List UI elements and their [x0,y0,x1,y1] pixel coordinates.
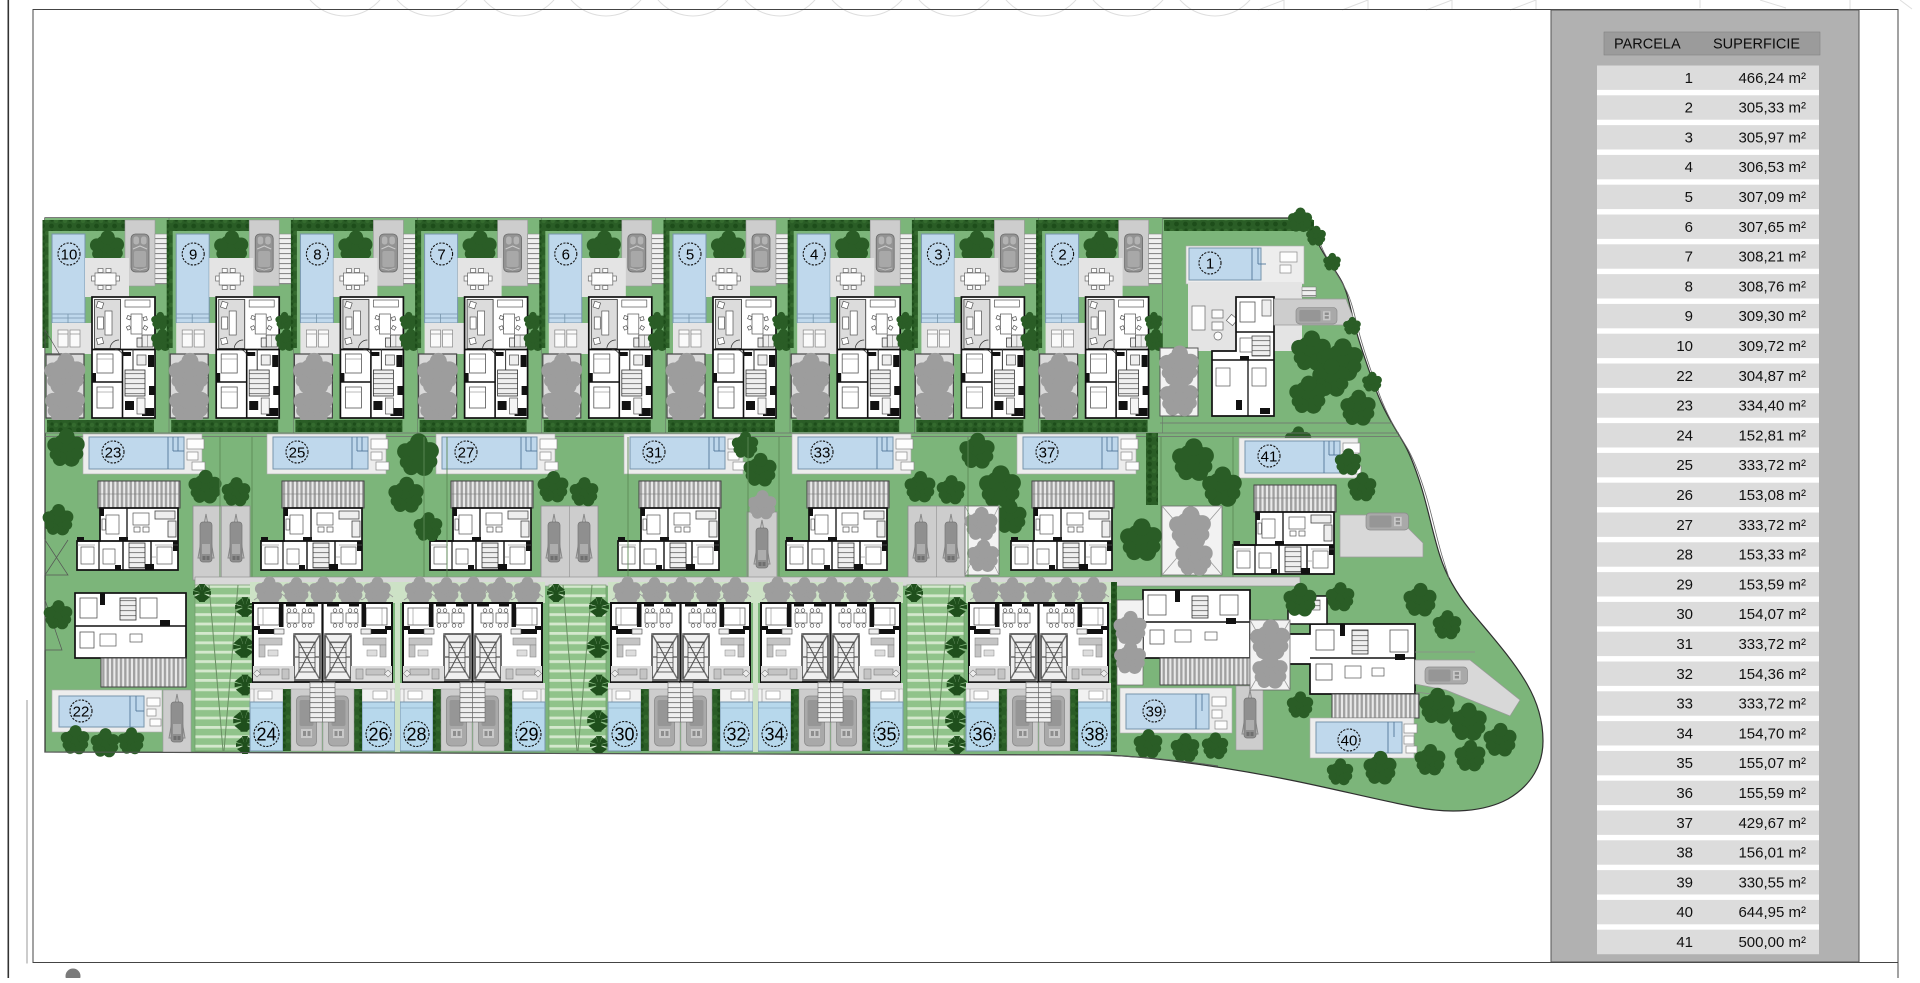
svg-text:153,59 m²: 153,59 m² [1738,576,1806,593]
svg-text:25: 25 [1676,457,1693,474]
svg-text:26: 26 [368,724,388,744]
svg-text:SUPERFICIE: SUPERFICIE [1713,37,1800,53]
svg-text:24: 24 [256,724,276,744]
svg-text:36: 36 [1676,785,1693,802]
svg-text:8: 8 [313,246,321,263]
svg-text:39: 39 [1146,703,1163,720]
svg-text:305,33 m²: 305,33 m² [1738,100,1806,117]
svg-text:155,59 m²: 155,59 m² [1738,785,1806,802]
svg-text:3: 3 [1685,129,1693,146]
svg-text:22: 22 [73,703,90,720]
svg-text:28: 28 [406,724,426,744]
svg-text:36: 36 [972,724,992,744]
svg-text:10: 10 [1676,338,1693,355]
svg-text:304,87 m²: 304,87 m² [1738,368,1806,385]
svg-text:4: 4 [810,246,818,263]
svg-text:2: 2 [1685,100,1693,117]
svg-text:334,40 m²: 334,40 m² [1738,398,1806,415]
svg-text:38: 38 [1084,724,1104,744]
svg-text:644,95 m²: 644,95 m² [1738,904,1806,921]
svg-text:333,72 m²: 333,72 m² [1738,517,1806,534]
svg-text:333,72 m²: 333,72 m² [1738,636,1806,653]
svg-text:154,36 m²: 154,36 m² [1738,666,1806,683]
svg-text:309,72 m²: 309,72 m² [1738,338,1806,355]
svg-text:7: 7 [437,246,445,263]
svg-text:500,00 m²: 500,00 m² [1738,934,1806,951]
svg-text:27: 27 [1676,517,1693,534]
svg-text:7: 7 [1685,249,1693,266]
svg-text:466,24 m²: 466,24 m² [1738,70,1806,87]
svg-text:40: 40 [1341,732,1358,749]
svg-text:PARCELA: PARCELA [1614,37,1681,53]
svg-text:155,07 m²: 155,07 m² [1738,755,1806,772]
svg-text:5: 5 [686,246,694,263]
svg-text:29: 29 [518,724,538,744]
svg-text:153,33 m²: 153,33 m² [1738,547,1806,564]
svg-text:154,07 m²: 154,07 m² [1738,606,1806,623]
svg-text:9: 9 [1685,308,1693,325]
svg-text:154,70 m²: 154,70 m² [1738,725,1806,742]
svg-text:34: 34 [764,724,784,744]
svg-text:3: 3 [934,246,942,263]
svg-text:39: 39 [1676,874,1693,891]
svg-text:37: 37 [1676,815,1693,832]
svg-text:309,30 m²: 309,30 m² [1738,308,1806,325]
svg-text:152,81 m²: 152,81 m² [1738,427,1806,444]
svg-text:24: 24 [1676,427,1693,444]
svg-text:308,76 m²: 308,76 m² [1738,278,1806,295]
svg-text:308,21 m²: 308,21 m² [1738,249,1806,266]
svg-text:41: 41 [1261,448,1278,465]
svg-text:34: 34 [1676,725,1693,742]
svg-text:22: 22 [1676,368,1693,385]
svg-text:38: 38 [1676,845,1693,862]
svg-text:6: 6 [1685,219,1693,236]
svg-text:8: 8 [1685,278,1693,295]
svg-text:40: 40 [1676,904,1693,921]
svg-text:307,65 m²: 307,65 m² [1738,219,1806,236]
svg-text:33: 33 [814,444,831,461]
svg-text:306,53 m²: 306,53 m² [1738,159,1806,176]
svg-text:6: 6 [562,246,570,263]
svg-text:29: 29 [1676,576,1693,593]
svg-text:33: 33 [1676,696,1693,713]
svg-text:1: 1 [1206,255,1214,272]
svg-text:31: 31 [1676,636,1693,653]
svg-text:1: 1 [1685,70,1693,87]
svg-text:35: 35 [1676,755,1693,772]
svg-text:333,72 m²: 333,72 m² [1738,457,1806,474]
svg-text:4: 4 [1685,159,1693,176]
svg-text:37: 37 [1039,444,1056,461]
svg-text:307,09 m²: 307,09 m² [1738,189,1806,206]
svg-text:28: 28 [1676,547,1693,564]
svg-text:41: 41 [1676,934,1693,951]
svg-text:35: 35 [876,724,896,744]
svg-text:2: 2 [1058,246,1066,263]
svg-text:333,72 m²: 333,72 m² [1738,696,1806,713]
svg-text:5: 5 [1685,189,1693,206]
svg-text:30: 30 [614,724,634,744]
svg-text:305,97 m²: 305,97 m² [1738,129,1806,146]
svg-text:32: 32 [1676,666,1693,683]
svg-text:27: 27 [458,444,475,461]
svg-text:32: 32 [726,724,746,744]
svg-text:25: 25 [289,444,306,461]
svg-text:153,08 m²: 153,08 m² [1738,487,1806,504]
svg-text:156,01 m²: 156,01 m² [1738,845,1806,862]
svg-text:10: 10 [61,246,78,263]
svg-text:429,67 m²: 429,67 m² [1738,815,1806,832]
svg-text:330,55 m²: 330,55 m² [1738,874,1806,891]
svg-text:23: 23 [1676,398,1693,415]
svg-text:9: 9 [189,246,197,263]
svg-text:30: 30 [1676,606,1693,623]
svg-text:23: 23 [105,444,122,461]
svg-text:31: 31 [646,444,663,461]
svg-text:26: 26 [1676,487,1693,504]
